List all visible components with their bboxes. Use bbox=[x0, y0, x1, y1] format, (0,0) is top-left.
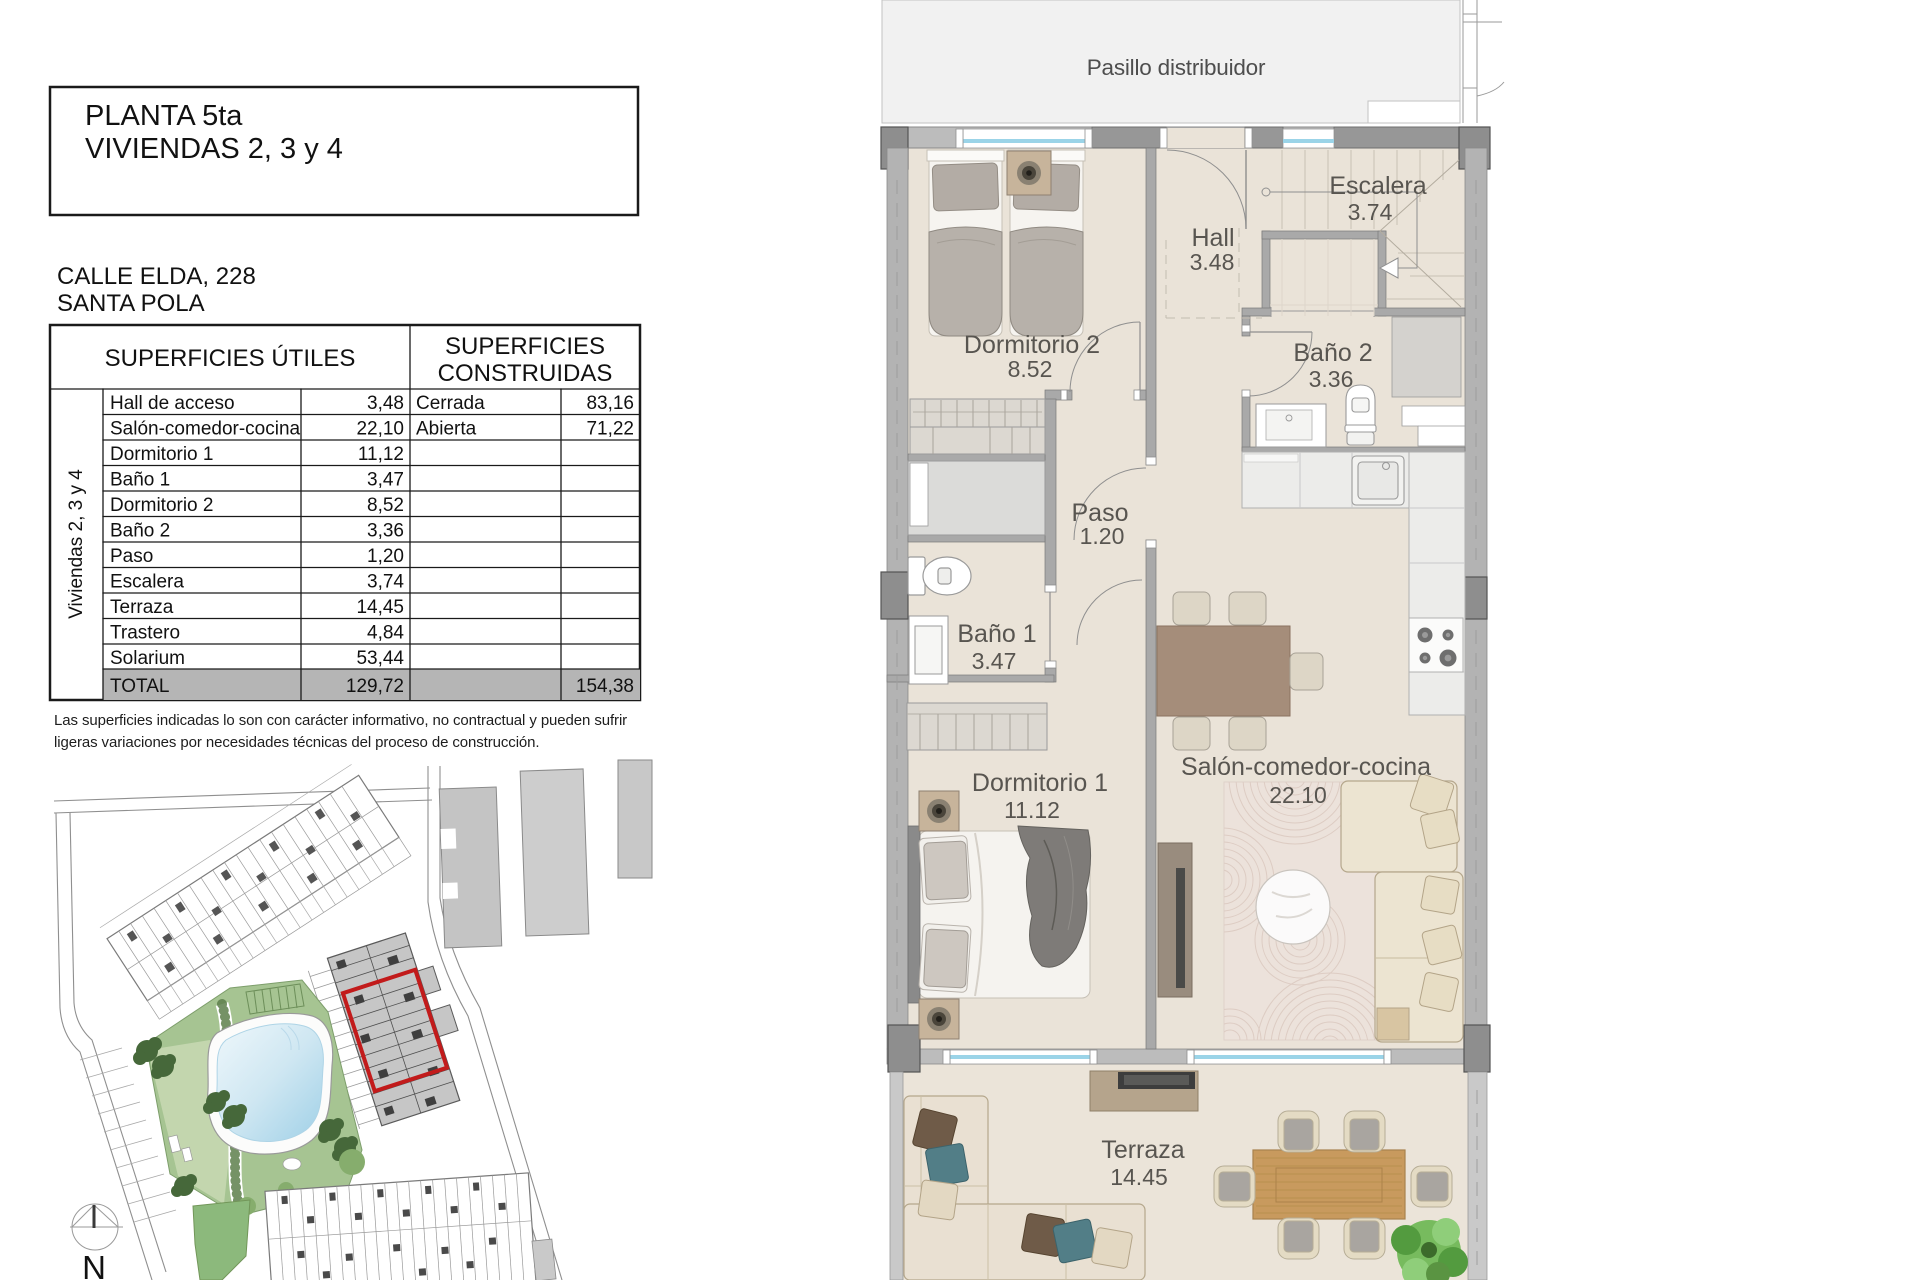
svg-text:22.10: 22.10 bbox=[1269, 782, 1327, 808]
svg-text:53,44: 53,44 bbox=[356, 648, 404, 669]
svg-text:71,22: 71,22 bbox=[586, 419, 634, 440]
svg-text:SUPERFICIES ÚTILES: SUPERFICIES ÚTILES bbox=[105, 345, 356, 372]
svg-text:Dormitorio 2: Dormitorio 2 bbox=[110, 495, 213, 516]
svg-text:3,48: 3,48 bbox=[367, 393, 404, 414]
svg-text:14,45: 14,45 bbox=[356, 597, 404, 618]
svg-text:3,36: 3,36 bbox=[367, 521, 404, 542]
svg-text:Solarium: Solarium bbox=[110, 648, 185, 669]
svg-text:3.36: 3.36 bbox=[1309, 366, 1354, 392]
svg-text:TOTAL: TOTAL bbox=[110, 676, 169, 697]
svg-text:8,52: 8,52 bbox=[367, 495, 404, 516]
svg-text:CONSTRUIDAS: CONSTRUIDAS bbox=[438, 360, 613, 387]
svg-text:Dormitorio 1: Dormitorio 1 bbox=[110, 444, 213, 465]
svg-text:Hall de acceso: Hall de acceso bbox=[110, 393, 235, 414]
svg-text:SUPERFICIES: SUPERFICIES bbox=[445, 333, 605, 360]
svg-text:Escalera: Escalera bbox=[110, 572, 184, 593]
svg-text:154,38: 154,38 bbox=[576, 676, 634, 697]
svg-text:4,84: 4,84 bbox=[367, 623, 404, 644]
svg-text:Salón-comedor-cocina: Salón-comedor-cocina bbox=[110, 419, 301, 440]
svg-text:N: N bbox=[82, 1249, 106, 1280]
svg-text:3.47: 3.47 bbox=[972, 648, 1017, 674]
svg-text:Terraza: Terraza bbox=[110, 597, 174, 618]
svg-text:Paso: Paso bbox=[110, 546, 153, 567]
svg-text:Viviendas 2, 3 y 4: Viviendas 2, 3 y 4 bbox=[66, 469, 87, 619]
svg-text:Baño 2: Baño 2 bbox=[110, 521, 170, 542]
svg-text:Terraza: Terraza bbox=[1101, 1136, 1184, 1164]
svg-text:Dormitorio 1: Dormitorio 1 bbox=[972, 769, 1108, 797]
svg-text:22,10: 22,10 bbox=[356, 419, 404, 440]
svg-text:11.12: 11.12 bbox=[1004, 797, 1060, 823]
svg-text:Escalera: Escalera bbox=[1329, 172, 1426, 200]
svg-text:83,16: 83,16 bbox=[586, 393, 634, 414]
svg-text:1.20: 1.20 bbox=[1080, 523, 1125, 549]
svg-text:3,47: 3,47 bbox=[367, 470, 404, 491]
svg-text:Baño 1: Baño 1 bbox=[110, 470, 170, 491]
svg-text:11,12: 11,12 bbox=[358, 444, 404, 465]
svg-text:Abierta: Abierta bbox=[416, 419, 477, 440]
svg-text:Salón-comedor-cocina: Salón-comedor-cocina bbox=[1181, 753, 1431, 781]
svg-text:PLANTA 5ta: PLANTA 5ta bbox=[85, 100, 243, 132]
svg-text:VIVIENDAS 2, 3 y 4: VIVIENDAS 2, 3 y 4 bbox=[85, 133, 343, 165]
svg-text:129,72: 129,72 bbox=[346, 676, 404, 697]
svg-text:Baño 2: Baño 2 bbox=[1293, 339, 1372, 367]
svg-text:ligeras variaciones por necesi: ligeras variaciones por necesidades técn… bbox=[54, 734, 539, 751]
svg-text:3,74: 3,74 bbox=[367, 572, 404, 593]
svg-text:Dormitorio 2: Dormitorio 2 bbox=[964, 331, 1100, 359]
svg-text:Trastero: Trastero bbox=[110, 623, 180, 644]
svg-text:14.45: 14.45 bbox=[1110, 1164, 1168, 1190]
svg-text:3.48: 3.48 bbox=[1190, 249, 1235, 275]
svg-text:1,20: 1,20 bbox=[367, 546, 404, 567]
svg-text:8.52: 8.52 bbox=[1008, 356, 1053, 382]
svg-text:Hall: Hall bbox=[1191, 224, 1234, 252]
svg-text:Las superficies indicadas lo s: Las superficies indicadas lo son con car… bbox=[54, 712, 627, 729]
svg-text:Pasillo distribuidor: Pasillo distribuidor bbox=[1087, 55, 1266, 80]
svg-text:SANTA POLA: SANTA POLA bbox=[57, 290, 205, 317]
svg-text:Cerrada: Cerrada bbox=[416, 393, 485, 414]
svg-text:CALLE ELDA, 228: CALLE ELDA, 228 bbox=[57, 263, 256, 290]
svg-text:3.74: 3.74 bbox=[1348, 199, 1393, 225]
svg-text:Baño 1: Baño 1 bbox=[957, 620, 1036, 648]
